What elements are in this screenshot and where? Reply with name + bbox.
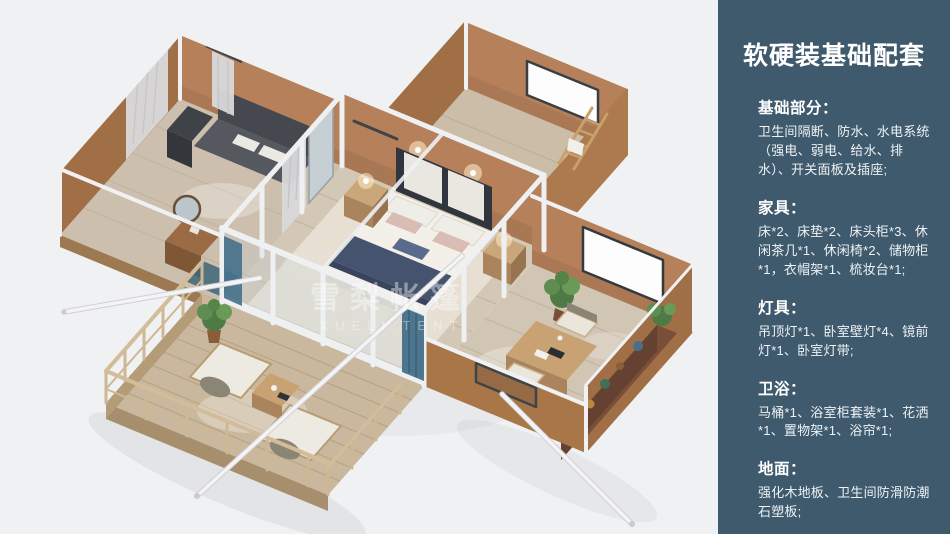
svg-text:雪梨帐篷: 雪梨帐篷	[310, 282, 470, 315]
section-body: 吊顶灯*1、卧室壁灯*4、镜前灯*1、卧室灯带;	[758, 323, 932, 361]
svg-text:XUELI TENT: XUELI TENT	[320, 318, 465, 333]
section-heading: 基础部分：	[758, 96, 932, 118]
section-heading: 地面：	[758, 457, 932, 479]
page-title: 软硬装基础配套	[726, 42, 942, 71]
slide: 雪梨帐篷 XUELI TENT 软硬装基础配套 基础部分： 卫生间隔断、防水、水…	[0, 0, 950, 534]
section-body: 强化木地板、卫生间防滑防潮石塑板;	[758, 484, 932, 522]
section-basics: 基础部分： 卫生间隔断、防水、水电系统（强电、弱电、给水、排水）、开关面板及插座…	[758, 96, 932, 180]
floorplan-render: 雪梨帐篷 XUELI TENT	[0, 0, 718, 534]
section-furniture: 家具： 床*2、床垫*2、床头柜*3、休闲茶几*1、休闲椅*2、储物柜*1，衣帽…	[758, 196, 932, 280]
section-body: 卫生间隔断、防水、水电系统（强电、弱电、给水、排水）、开关面板及插座;	[758, 123, 932, 180]
section-flooring: 地面： 强化木地板、卫生间防滑防潮石塑板;	[758, 457, 932, 522]
section-bathroom: 卫浴： 马桶*1、浴室柜套装*1、花洒*1、置物架*1、浴帘*1;	[758, 377, 932, 442]
section-heading: 卫浴：	[758, 377, 932, 399]
floorplan-illustration: 雪梨帐篷 XUELI TENT	[0, 0, 718, 534]
curtain-blue	[224, 236, 242, 306]
section-heading: 家具：	[758, 196, 932, 218]
section-heading: 灯具：	[758, 296, 932, 318]
section-lighting: 灯具： 吊顶灯*1、卧室壁灯*4、镜前灯*1、卧室灯带;	[758, 296, 932, 361]
spec-sections: 基础部分： 卫生间隔断、防水、水电系统（强电、弱电、给水、排水）、开关面板及插座…	[718, 71, 950, 523]
sidebar: 软硬装基础配套 基础部分： 卫生间隔断、防水、水电系统（强电、弱电、给水、排水）…	[718, 0, 950, 534]
section-body: 马桶*1、浴室柜套装*1、花洒*1、置物架*1、浴帘*1;	[758, 404, 932, 442]
section-body: 床*2、床垫*2、床头柜*3、休闲茶几*1、休闲椅*2、储物柜*1，衣帽架*1、…	[758, 223, 932, 280]
watermark: 雪梨帐篷 XUELI TENT	[310, 282, 470, 333]
